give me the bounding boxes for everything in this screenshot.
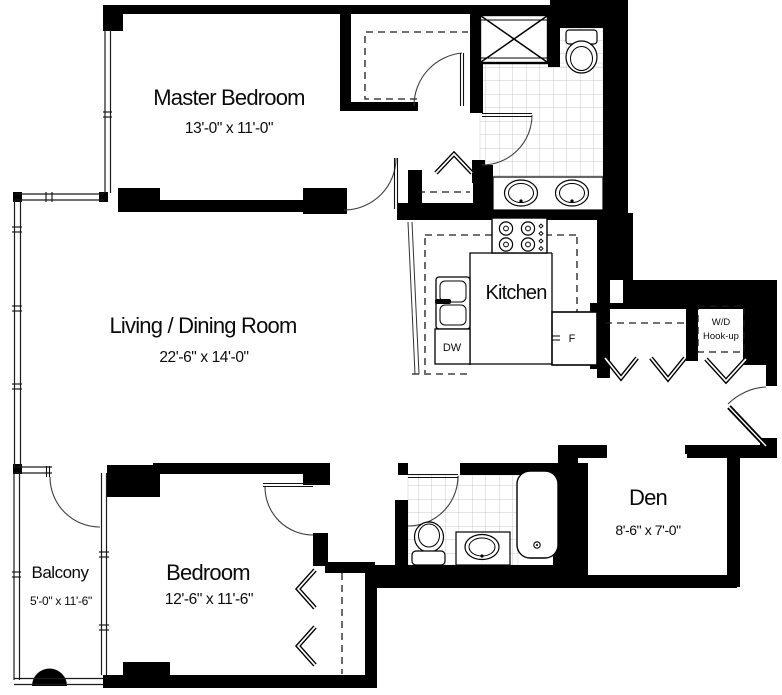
- room-label-balcony: Balcony: [32, 563, 90, 582]
- kitchen-sink: [435, 277, 470, 329]
- wd-hookup-label-line2: Hook-up: [703, 331, 739, 342]
- room-label-den: Den: [629, 485, 667, 510]
- room-label-kitchen: Kitchen: [485, 282, 546, 304]
- second-bath-vanity: [456, 532, 510, 565]
- master-bath-toilet: [566, 30, 597, 73]
- wd-hookup-label-line1: W/D: [712, 317, 731, 328]
- refrigerator-label: F: [569, 333, 576, 345]
- shower: [480, 15, 548, 63]
- room-label-living-dining: Living / Dining Room: [110, 313, 297, 338]
- room-dims-living-dining: 22'-6" x 14'-0": [159, 349, 248, 366]
- second-bath-toilet: [412, 522, 445, 565]
- master-bath-tile-floor-2: [480, 63, 603, 177]
- stove: [492, 218, 547, 253]
- room-label-master-bedroom: Master Bedroom: [153, 85, 304, 110]
- kitchen-faucet: [435, 299, 451, 304]
- floor-plan: Master Bedroom 13'-0" x 11'-0" Living / …: [0, 0, 782, 695]
- bathtub: [517, 471, 558, 558]
- floor-plan-page: Master Bedroom 13'-0" x 11'-0" Living / …: [0, 0, 782, 695]
- dishwasher-label: DW: [443, 342, 462, 354]
- room-dims-master-bedroom: 13'-0" x 11'-0": [185, 120, 273, 137]
- master-bath-vanity: [493, 177, 603, 210]
- room-dims-bedroom: 12'-6" x 11'-6": [165, 591, 253, 608]
- room-dims-den: 8'-6" x 7'-0": [615, 522, 681, 538]
- room-dims-balcony: 5'-0" x 11'-6": [30, 594, 92, 608]
- room-label-bedroom: Bedroom: [166, 560, 250, 585]
